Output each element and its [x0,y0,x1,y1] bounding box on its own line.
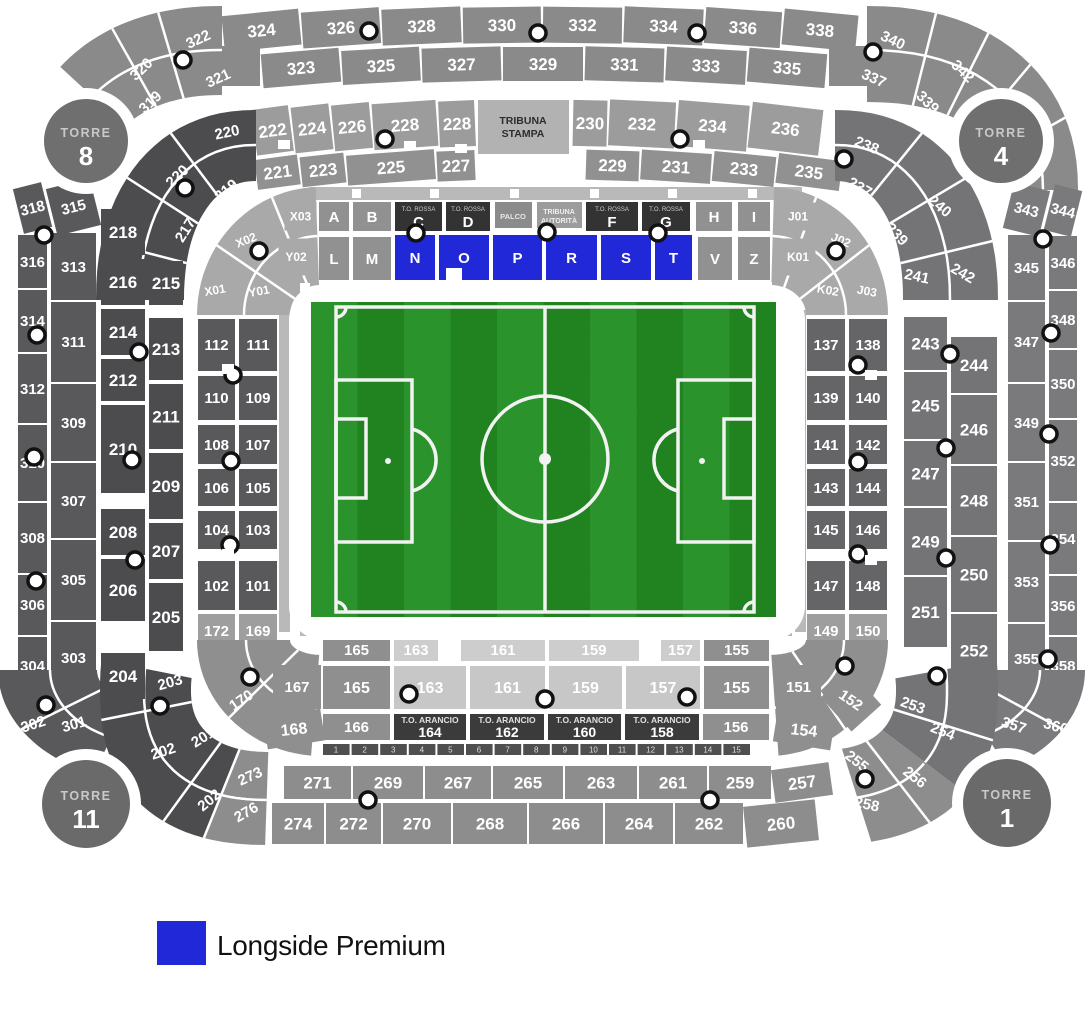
svg-text:157: 157 [668,642,693,659]
svg-text:14: 14 [703,746,712,755]
svg-text:N: N [410,250,421,267]
svg-text:161: 161 [490,642,515,659]
svg-text:147: 147 [813,578,838,595]
svg-text:108: 108 [204,437,229,454]
svg-text:146: 146 [855,522,880,539]
svg-text:274: 274 [284,815,313,834]
svg-text:224: 224 [297,118,328,140]
svg-text:213: 213 [152,340,180,359]
svg-text:K01: K01 [787,250,809,264]
svg-text:214: 214 [109,323,138,342]
svg-text:257: 257 [787,772,818,795]
svg-text:215: 215 [152,274,180,293]
svg-text:264: 264 [625,815,654,834]
svg-text:323: 323 [286,58,316,79]
svg-text:312: 312 [20,381,45,398]
svg-text:141: 141 [813,437,838,454]
svg-text:211: 211 [152,407,179,426]
svg-text:243: 243 [911,334,939,353]
svg-text:145: 145 [813,522,838,539]
svg-text:167: 167 [284,679,309,696]
svg-text:8: 8 [534,746,539,755]
svg-text:154: 154 [790,721,818,741]
svg-text:109: 109 [245,390,270,407]
svg-text:STAMPA: STAMPA [502,128,545,140]
svg-text:345: 345 [1014,260,1039,277]
svg-text:J01: J01 [788,210,808,224]
svg-text:T: T [669,250,678,267]
svg-text:149: 149 [813,623,838,640]
svg-text:I: I [752,209,756,226]
svg-text:163: 163 [417,680,444,697]
svg-text:12: 12 [646,746,655,755]
svg-text:223: 223 [308,159,338,181]
svg-text:15: 15 [732,746,741,755]
svg-text:249: 249 [911,533,939,552]
svg-text:1: 1 [334,746,339,755]
svg-text:4: 4 [994,141,1009,171]
svg-text:144: 144 [855,480,881,497]
svg-text:107: 107 [245,437,270,454]
svg-text:251: 251 [911,603,939,622]
svg-text:207: 207 [152,542,180,561]
svg-text:347: 347 [1014,334,1039,351]
svg-text:D: D [463,214,474,231]
svg-text:168: 168 [280,720,308,740]
svg-text:X03: X03 [290,210,312,224]
svg-text:329: 329 [529,55,557,74]
svg-text:5: 5 [448,746,453,755]
svg-text:B: B [367,209,378,226]
svg-text:162: 162 [495,724,519,740]
svg-text:244: 244 [960,356,989,375]
svg-text:F: F [607,214,616,231]
svg-text:TORRE: TORRE [981,788,1032,802]
svg-text:333: 333 [691,56,720,77]
svg-text:8: 8 [79,141,93,171]
svg-text:306: 306 [20,597,45,614]
svg-text:259: 259 [726,774,754,793]
svg-text:6: 6 [477,746,482,755]
svg-text:232: 232 [627,114,656,134]
svg-text:355: 355 [1014,651,1039,668]
svg-text:Z: Z [749,251,758,268]
svg-text:165: 165 [344,642,369,659]
svg-text:307: 307 [61,493,86,510]
svg-text:227: 227 [441,156,470,176]
svg-text:325: 325 [366,56,395,77]
svg-text:161: 161 [494,680,521,697]
svg-text:V: V [710,251,720,268]
svg-text:316: 316 [20,254,45,271]
svg-text:TRIBUNA: TRIBUNA [499,115,547,127]
svg-text:105: 105 [245,480,270,497]
svg-text:M: M [366,251,379,268]
svg-text:O: O [458,250,470,267]
svg-text:164: 164 [418,724,442,740]
svg-text:163: 163 [403,642,428,659]
svg-text:261: 261 [659,774,687,793]
svg-text:159: 159 [572,680,599,697]
svg-text:338: 338 [805,20,835,42]
svg-text:TRIBUNA: TRIBUNA [543,209,575,216]
svg-text:155: 155 [723,680,750,697]
svg-text:156: 156 [723,719,748,736]
svg-text:140: 140 [855,390,880,407]
svg-text:Longside Premium: Longside Premium [217,930,446,961]
svg-text:308: 308 [20,530,45,547]
svg-text:157: 157 [650,680,677,697]
svg-text:T.O. ROSSA: T.O. ROSSA [595,207,629,213]
svg-text:247: 247 [911,464,939,483]
svg-text:353: 353 [1014,574,1039,591]
svg-text:356: 356 [1050,598,1075,615]
svg-text:336: 336 [728,18,758,39]
svg-text:T.O. ROSSA: T.O. ROSSA [402,207,436,213]
svg-text:248: 248 [960,491,988,510]
svg-text:332: 332 [568,16,597,35]
svg-text:350: 350 [1050,376,1075,393]
svg-text:137: 137 [813,337,838,354]
svg-text:166: 166 [344,719,369,736]
svg-text:225: 225 [376,157,406,178]
svg-text:235: 235 [794,161,825,183]
svg-text:266: 266 [552,815,580,834]
svg-text:346: 346 [1050,255,1075,272]
svg-text:263: 263 [587,774,615,793]
svg-text:228: 228 [390,115,420,136]
svg-text:218: 218 [109,223,137,242]
svg-text:272: 272 [339,815,367,834]
svg-text:228: 228 [442,114,471,134]
svg-text:150: 150 [855,623,880,640]
svg-text:324: 324 [246,20,277,42]
svg-text:311: 311 [61,334,85,351]
svg-text:143: 143 [813,480,838,497]
svg-text:106: 106 [204,480,229,497]
svg-text:H: H [709,209,720,226]
svg-text:230: 230 [576,114,605,134]
svg-text:334: 334 [649,16,679,36]
svg-text:T.O. ROSSA: T.O. ROSSA [649,207,683,213]
svg-text:159: 159 [581,642,606,659]
svg-text:R: R [566,250,577,267]
svg-text:313: 313 [61,259,86,276]
svg-text:270: 270 [403,815,431,834]
svg-text:351: 351 [1014,494,1039,511]
svg-text:328: 328 [407,16,436,36]
svg-text:T.O. ROSSA: T.O. ROSSA [451,207,485,213]
svg-text:138: 138 [855,337,880,354]
svg-text:139: 139 [813,390,838,407]
svg-text:221: 221 [262,161,293,184]
svg-text:331: 331 [610,55,639,75]
svg-text:335: 335 [772,58,802,79]
svg-text:205: 205 [152,608,180,627]
svg-text:269: 269 [374,774,402,793]
svg-text:169: 169 [245,623,270,640]
svg-text:10: 10 [589,746,598,755]
svg-text:234: 234 [698,116,728,137]
svg-text:236: 236 [770,118,800,140]
svg-text:Y02: Y02 [285,250,307,264]
svg-text:13: 13 [675,746,684,755]
svg-text:252: 252 [960,642,988,661]
svg-text:206: 206 [109,581,137,600]
svg-text:11: 11 [72,804,100,834]
svg-text:160: 160 [573,724,597,740]
svg-text:327: 327 [447,55,476,75]
svg-text:112: 112 [204,337,228,354]
svg-text:305: 305 [61,572,86,589]
svg-text:4: 4 [420,746,425,755]
svg-text:172: 172 [204,623,229,640]
svg-text:3: 3 [391,746,396,755]
svg-text:9: 9 [563,746,568,755]
svg-text:330: 330 [488,16,517,35]
svg-text:352: 352 [1050,453,1075,470]
svg-text:2: 2 [362,746,367,755]
svg-text:1: 1 [1000,803,1014,833]
svg-text:209: 209 [152,477,180,496]
svg-text:212: 212 [109,371,137,390]
svg-text:233: 233 [729,159,759,181]
svg-text:250: 250 [960,566,988,585]
svg-text:245: 245 [911,396,939,415]
svg-text:303: 303 [61,650,86,667]
svg-text:326: 326 [326,18,356,39]
svg-text:155: 155 [724,642,749,659]
svg-text:102: 102 [204,578,229,595]
svg-text:268: 268 [476,815,504,834]
svg-text:349: 349 [1014,415,1039,432]
svg-text:7: 7 [505,746,510,755]
svg-text:271: 271 [303,774,331,793]
svg-text:267: 267 [444,774,472,793]
svg-text:165: 165 [343,680,370,697]
svg-text:246: 246 [960,420,988,439]
svg-text:260: 260 [766,813,796,835]
svg-text:204: 204 [109,667,138,686]
svg-text:231: 231 [661,157,691,178]
svg-text:A: A [329,209,340,226]
svg-text:151: 151 [786,679,811,696]
svg-text:229: 229 [598,156,627,176]
svg-text:P: P [512,250,522,267]
svg-text:222: 222 [257,120,288,143]
svg-text:11: 11 [618,746,627,755]
svg-text:216: 216 [109,273,137,292]
svg-text:103: 103 [245,522,270,539]
svg-text:265: 265 [514,774,542,793]
svg-text:158: 158 [650,724,674,740]
svg-text:TORRE: TORRE [60,126,111,140]
svg-text:309: 309 [61,415,86,432]
svg-text:101: 101 [245,578,270,595]
svg-text:208: 208 [109,523,137,542]
svg-text:226: 226 [337,116,367,138]
svg-text:TORRE: TORRE [60,789,111,803]
svg-text:PALCO: PALCO [500,212,526,221]
svg-text:148: 148 [855,578,880,595]
svg-text:142: 142 [855,437,880,454]
svg-text:262: 262 [695,815,723,834]
svg-text:111: 111 [246,337,269,354]
svg-text:110: 110 [204,390,228,407]
svg-text:TORRE: TORRE [975,126,1026,140]
svg-text:S: S [621,250,631,267]
svg-text:L: L [329,251,338,268]
